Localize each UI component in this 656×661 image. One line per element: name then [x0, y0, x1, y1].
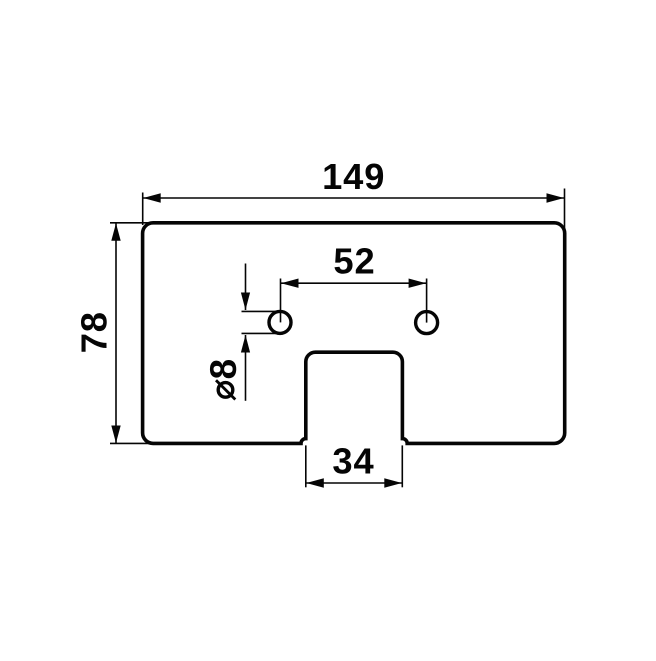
svg-text:149: 149 [322, 156, 385, 197]
svg-text:34: 34 [332, 441, 374, 482]
svg-text:78: 78 [74, 311, 115, 353]
svg-text:8: 8 [203, 358, 244, 379]
svg-text:52: 52 [333, 241, 375, 282]
